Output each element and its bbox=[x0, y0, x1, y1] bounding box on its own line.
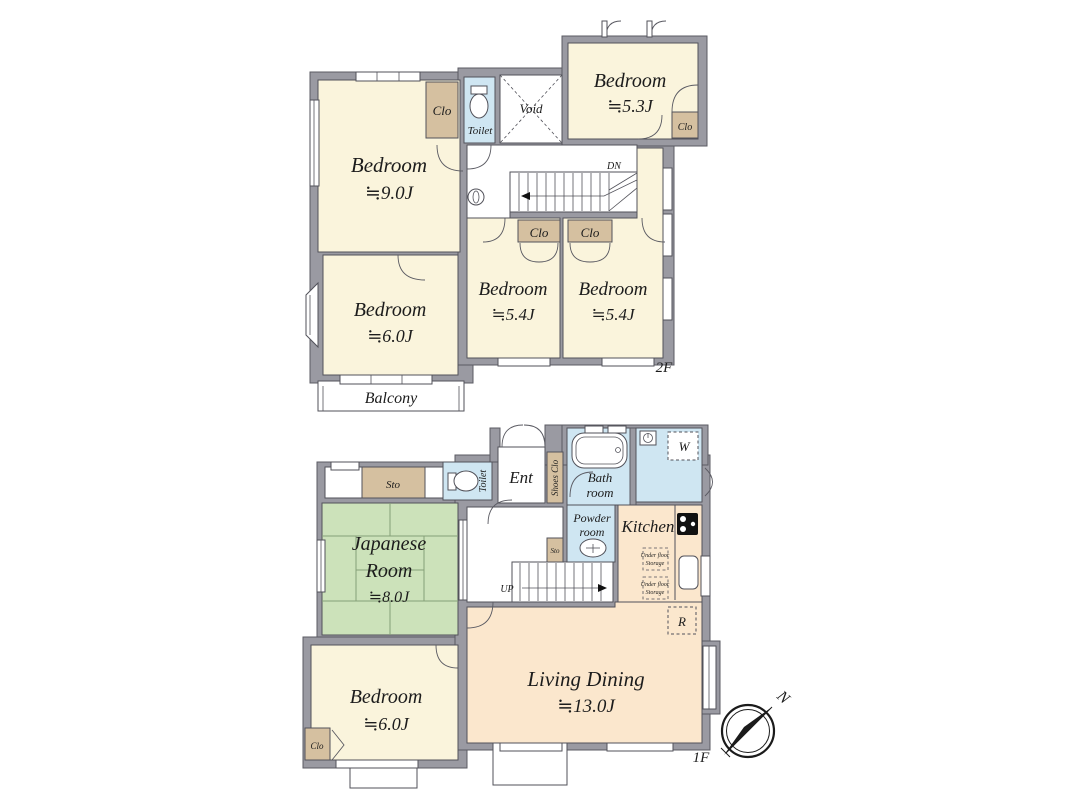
shoes-clo-label: Shoes Clo bbox=[550, 459, 560, 496]
bathtub-icon bbox=[572, 433, 627, 468]
powder-sink-icon bbox=[580, 539, 606, 557]
floor-label-1f: 1F bbox=[693, 750, 711, 766]
toilet-2f-icon bbox=[470, 86, 488, 118]
1f-sto-side bbox=[425, 467, 443, 498]
sto-label: Sto bbox=[386, 479, 401, 491]
room-label-bedroom53: Bedroom bbox=[594, 70, 667, 92]
closet-label: Clo bbox=[433, 103, 452, 118]
bath-label-2: room bbox=[587, 485, 614, 500]
room-label-bedroom6-2f: Bedroom bbox=[354, 299, 427, 321]
washer-label: W bbox=[679, 439, 691, 454]
floor-1f: Sto Toilet Ent Shoes Clo Bath room W Pow… bbox=[303, 425, 720, 788]
kitchen-label: Kitchen bbox=[621, 517, 675, 536]
closet-label: Clo bbox=[310, 741, 324, 751]
powder-label-2: room bbox=[580, 525, 605, 539]
void-label: Void bbox=[519, 101, 543, 116]
closet-label: Clo bbox=[581, 225, 600, 240]
japanese-label-1: Japanese bbox=[352, 533, 427, 555]
compass-north-label: N bbox=[773, 687, 794, 708]
2f-stairs-box bbox=[510, 172, 637, 212]
room-size-bedroom54b: ≒5.4J bbox=[591, 305, 635, 324]
toilet-label: Toilet bbox=[478, 470, 489, 493]
kitchen-sink-icon bbox=[679, 556, 698, 589]
under-floor-label-1b: Storage bbox=[646, 561, 665, 567]
closet-label: Clo bbox=[678, 122, 692, 133]
toilet-1f-icon bbox=[448, 471, 478, 491]
room-size-bedroom6-1f: ≒6.0J bbox=[363, 714, 410, 734]
sto-small-label: Sto bbox=[551, 547, 560, 555]
under-floor-label-1a: Under floor bbox=[641, 552, 670, 559]
room-label-bedroom54b: Bedroom bbox=[579, 279, 648, 300]
1f-wall-bath-laundry bbox=[630, 428, 636, 505]
room-label-bedroom6-1f: Bedroom bbox=[350, 686, 423, 708]
stairs-dn-label: DN bbox=[606, 161, 622, 172]
toilet-label: Toilet bbox=[468, 125, 494, 137]
room-size-bedroom9: ≒9.0J bbox=[365, 183, 415, 204]
up-label: UP bbox=[500, 584, 513, 595]
japanese-size: ≒8.0J bbox=[369, 589, 410, 606]
1f-stairs-box bbox=[512, 562, 613, 602]
under-floor-label-2a: Under floor bbox=[641, 581, 670, 588]
room-label-bedroom54a: Bedroom bbox=[479, 279, 548, 300]
room-size-bedroom54a: ≒5.4J bbox=[491, 305, 535, 324]
room-size-bedroom6-2f: ≒6.0J bbox=[367, 326, 414, 346]
ent-label: Ent bbox=[508, 468, 534, 487]
floor-2f: Bedroom ≒9.0J Clo Toilet Void Bedroom ≒5… bbox=[306, 21, 707, 411]
living-dining-label: Living Dining bbox=[526, 667, 644, 691]
floor-plan-page: Bedroom ≒9.0J Clo Toilet Void Bedroom ≒5… bbox=[0, 0, 1080, 810]
japanese-label-2: Room bbox=[365, 560, 413, 582]
room-size-bedroom53: ≒5.3J bbox=[607, 96, 654, 116]
bath-label-1: Bath bbox=[588, 470, 613, 485]
compass: N bbox=[721, 687, 794, 757]
balcony-label: Balcony bbox=[365, 390, 418, 407]
1f-corner-room bbox=[325, 467, 362, 498]
living-dining-size: ≒13.0J bbox=[557, 696, 616, 717]
room-label-bedroom9: Bedroom bbox=[351, 153, 427, 177]
1f-porch-bedroom bbox=[350, 768, 417, 788]
floor-plan-drawing: Bedroom ≒9.0J Clo Toilet Void Bedroom ≒5… bbox=[0, 0, 1080, 810]
floor-label-2f: 2F bbox=[656, 360, 674, 376]
closet-label: Clo bbox=[530, 225, 549, 240]
fridge-label: R bbox=[677, 614, 686, 629]
powder-label-1: Powder bbox=[572, 511, 611, 525]
under-floor-label-2b: Storage bbox=[646, 590, 665, 596]
